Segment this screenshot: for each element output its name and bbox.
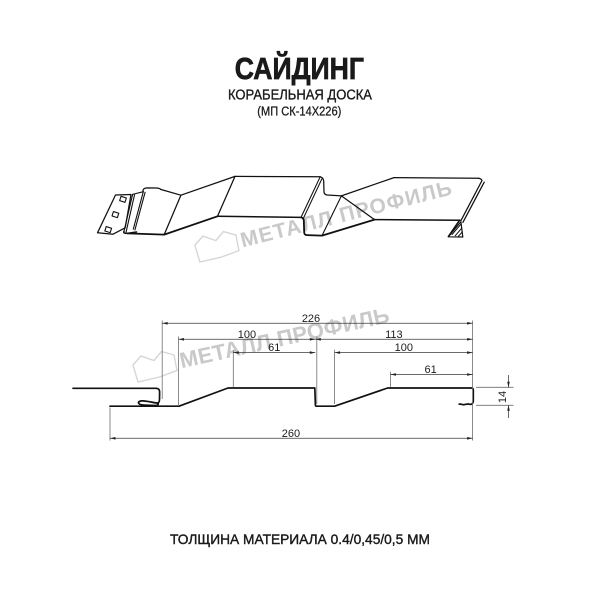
svg-text:ТОЛЩИНА МАТЕРИАЛА 0.4/0,45/0,5: ТОЛЩИНА МАТЕРИАЛА 0.4/0,45/0,5 ММ — [170, 531, 430, 547]
svg-text:61: 61 — [268, 342, 280, 354]
svg-text:100: 100 — [238, 329, 256, 341]
svg-text:61: 61 — [424, 364, 436, 376]
svg-text:113: 113 — [385, 329, 403, 341]
svg-text:КОРАБЕЛЬНАЯ ДОСКА: КОРАБЕЛЬНАЯ ДОСКА — [228, 88, 372, 104]
svg-text:100: 100 — [395, 342, 413, 354]
svg-text:14: 14 — [497, 391, 509, 403]
svg-text:САЙДИНГ: САЙДИНГ — [235, 50, 364, 86]
svg-text:(МП СК-14Х226): (МП СК-14Х226) — [257, 105, 341, 119]
svg-text:226: 226 — [302, 313, 320, 325]
svg-text:260: 260 — [282, 428, 300, 440]
